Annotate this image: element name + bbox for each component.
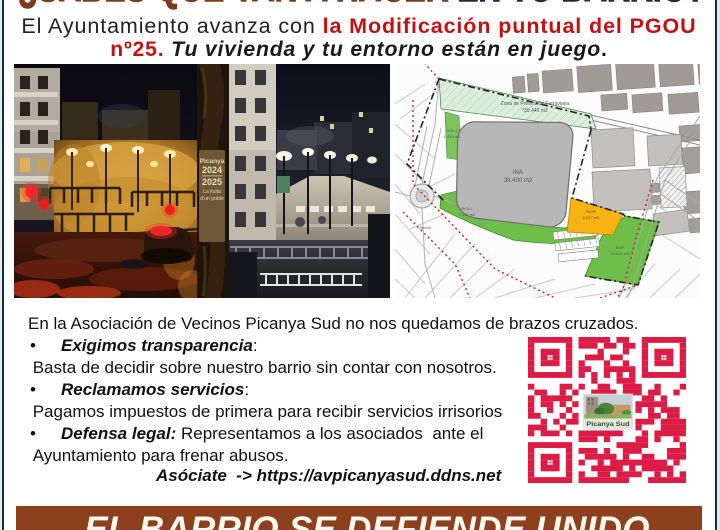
svg-text:Picanya Sud: Picanya Sud: [586, 421, 629, 428]
svg-text:2025: 2025: [202, 177, 222, 187]
svg-text:*39.445 m2: *39.445 m2: [522, 108, 548, 114]
svg-text:5.247 m2: 5.247 m2: [583, 215, 600, 220]
svg-text:10.810 m2: 10.810 m2: [611, 251, 631, 256]
svg-text:1.499 m2: 1.499 m2: [444, 134, 461, 139]
svg-text:BVD-1: BVD-1: [461, 206, 474, 211]
svg-text:INA: INA: [513, 170, 523, 176]
svg-text:BIOR: BIOR: [586, 209, 596, 214]
svg-text:Zona de Protección Ferroviaria: Zona de Protección Ferroviaria: [501, 101, 570, 107]
svg-text:Picanya: Picanya: [200, 158, 225, 165]
svg-text:La lluita: La lluita: [203, 189, 221, 195]
svg-text:2024: 2024: [202, 165, 222, 175]
svg-text:BVP: BVP: [616, 245, 624, 250]
svg-text:39.400 m2: 39.400 m2: [504, 178, 533, 184]
svg-text:SVA-2: SVA-2: [446, 128, 458, 133]
svg-text:d'un poble: d'un poble: [200, 196, 224, 202]
svg-text:7.132 m2: 7.132 m2: [459, 212, 476, 217]
svg-text:Senda: Senda: [419, 225, 431, 230]
